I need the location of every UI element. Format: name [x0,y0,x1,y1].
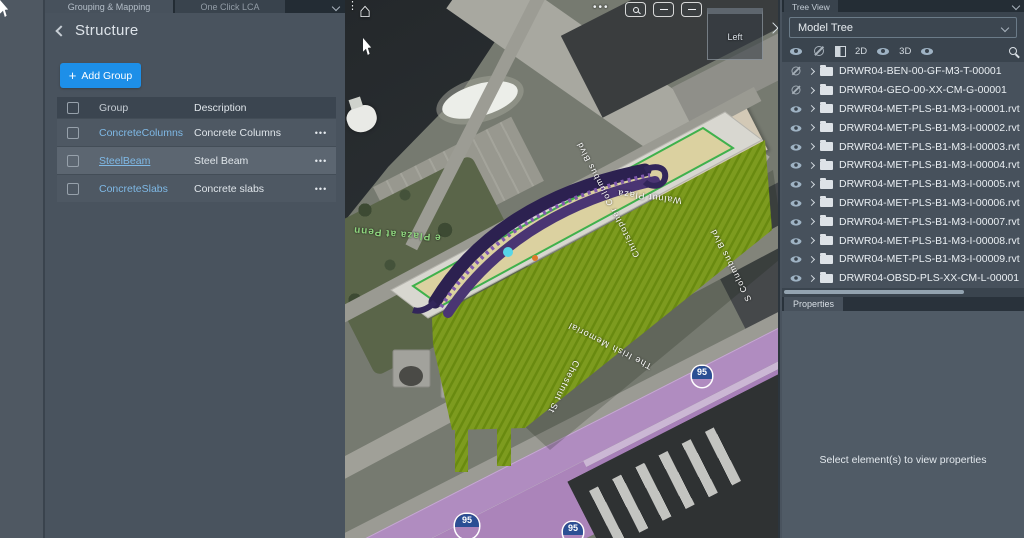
tree-item[interactable]: DRWR04-MET-PLS-B1-M3-I-00004.rvt [782,156,1024,175]
visibility-eye-icon[interactable] [790,178,803,191]
tree-item[interactable]: DRWR04-MET-PLS-B1-M3-I-00001.rvt [782,100,1024,119]
right-tabbar: Tree View [782,0,1024,12]
model-tree-list: DRWR04-BEN-00-GF-M3-T-00001 DRWR04-GEO-0… [782,62,1024,288]
group-description: Concrete Columns [194,127,306,139]
tree-toolbar: 2D 3D [789,43,1017,59]
table-row-steelbeam[interactable]: SteelBeam Steel Beam ••• [57,146,336,174]
tree-item[interactable]: DRWR04-MET-PLS-B1-M3-I-00007.rvt [782,212,1024,231]
tree-item-label[interactable]: DRWR04-MET-PLS-B1-M3-I-00002.rvt [839,122,1020,134]
zoom-tool-icon[interactable] [625,2,646,17]
pan-tool-icon[interactable] [653,2,674,17]
tree-item-label[interactable]: DRWR04-MET-PLS-B1-M3-I-00004.rvt [839,159,1020,171]
visibility-eye-icon[interactable] [790,272,803,285]
tab-grouping-mapping-label: Grouping & Mapping [68,2,151,12]
more-options-icon[interactable]: ••• [593,2,610,13]
expand-chevron-icon[interactable] [808,105,815,112]
horizontal-scrollbar[interactable] [784,290,964,294]
expand-chevron-icon[interactable] [808,124,815,131]
tree-item-label[interactable]: DRWR04-MET-PLS-B1-M3-I-00008.rvt [839,235,1020,247]
2d-visibility-eye-icon[interactable] [876,44,890,58]
expand-chevron-icon[interactable] [808,237,815,244]
column-header-group: Group [99,102,194,114]
tab-tree-view-label: Tree View [792,2,830,12]
back-chevron-icon[interactable] [55,25,66,36]
tree-item[interactable]: DRWR04-MET-PLS-B1-M3-I-00006.rvt [782,194,1024,213]
folder-icon [820,180,833,189]
tab-properties-label: Properties [793,299,834,309]
group-description: Concrete slabs [194,183,306,195]
tree-view-panel: Tree View Model Tree 2D 3D DRWR04-BEN-00… [782,0,1024,538]
row-menu-icon[interactable]: ••• [306,156,336,166]
2d-label: 2D [855,46,867,57]
visibility-eye-icon[interactable] [790,234,803,247]
drag-handle-icon[interactable]: ⋮ [347,4,358,9]
show-all-eye-icon[interactable] [789,44,803,58]
add-group-button[interactable]: + Add Group [60,63,141,88]
folder-icon [820,104,833,113]
hide-all-eye-icon[interactable] [812,44,826,58]
3d-visibility-eye-icon[interactable] [920,44,934,58]
properties-empty-message: Select element(s) to view properties [820,454,987,466]
expand-chevron-icon[interactable] [808,87,815,94]
tree-item-label[interactable]: DRWR04-GEO-00-XX-CM-G-00001 [839,84,1007,96]
dash-glyph [688,9,696,11]
groups-table: Group Description ConcreteColumns Concre… [57,97,336,202]
visibility-eye-icon[interactable] [790,84,803,97]
tree-item-label[interactable]: DRWR04-OBSD-PLS-XX-CM-L-00001 [839,272,1019,284]
left-gutter [0,0,45,538]
group-description: Steel Beam [194,155,306,167]
expand-chevron-icon[interactable] [808,275,815,282]
tab-one-click-lca-label: One Click LCA [200,2,259,12]
tree-item[interactable]: DRWR04-MET-PLS-B1-M3-I-00003.rvt [782,137,1024,156]
group-name-link[interactable]: ConcreteColumns [99,127,194,139]
tab-tree-view[interactable]: Tree View [784,0,838,12]
tree-item[interactable]: DRWR04-MET-PLS-B1-M3-I-00002.rvt [782,118,1024,137]
tree-item[interactable]: DRWR04-MET-PLS-B1-M3-I-00005.rvt [782,175,1024,194]
expand-chevron-icon[interactable] [808,143,815,150]
folder-icon [820,142,833,151]
interstate-95-shield: 95 [455,514,479,538]
column-header-description: Description [194,102,306,114]
map-3d-viewport[interactable]: Walnut Plaza e Plaza at Penn Christopher… [345,0,780,538]
folder-icon [820,123,833,132]
model-tree-dropdown-value: Model Tree [798,22,853,34]
table-row-concretecolumns[interactable]: ConcreteColumns Concrete Columns ••• [57,118,336,146]
page-title: Structure [75,22,139,39]
properties-panel: Select element(s) to view properties [782,311,1024,538]
tree-item[interactable]: DRWR04-OBSD-PLS-XX-CM-L-00001 [782,269,1024,288]
tab-grouping-mapping[interactable]: Grouping & Mapping [45,0,173,13]
tree-item-label[interactable]: DRWR04-MET-PLS-B1-M3-I-00007.rvt [839,216,1020,228]
folder-icon [820,236,833,245]
folder-icon [820,86,833,95]
row-menu-icon[interactable]: ••• [306,184,336,194]
window-tool-icon[interactable] [681,2,702,17]
row-checkbox[interactable] [67,155,79,167]
tree-item[interactable]: DRWR04-BEN-00-GF-M3-T-00001 [782,62,1024,81]
isolate-icon[interactable] [835,46,846,57]
left-tabbar: Grouping & Mapping One Click LCA [45,0,345,13]
tree-item-label[interactable]: DRWR04-MET-PLS-B1-M3-I-00006.rvt [839,197,1020,209]
folder-icon [820,67,833,76]
model-tree-dropdown[interactable]: Model Tree [789,17,1017,38]
dash-glyph [660,9,668,11]
plus-icon: + [69,69,77,82]
tree-item[interactable]: DRWR04-MET-PLS-B1-M3-I-00009.rvt [782,250,1024,269]
visibility-eye-icon[interactable] [790,215,803,228]
interstate-95-shield: 95 [563,522,583,538]
tree-item-label[interactable]: DRWR04-MET-PLS-B1-M3-I-00003.rvt [839,141,1020,153]
folder-icon [820,217,833,226]
select-all-checkbox[interactable] [67,102,79,114]
properties-tabbar: Properties [782,297,1024,311]
expand-chevron-icon[interactable] [808,162,815,169]
visibility-eye-icon[interactable] [790,197,803,210]
folder-icon [820,161,833,170]
grouping-mapping-panel: Grouping & Mapping One Click LCA Structu… [45,0,345,538]
visibility-eye-icon[interactable] [790,121,803,134]
view-cube[interactable]: Left [707,8,763,60]
tab-properties[interactable]: Properties [784,297,843,311]
row-checkbox[interactable] [67,183,79,195]
left-tabbar-chevron-down-icon[interactable] [332,3,340,11]
tree-item-label[interactable]: DRWR04-MET-PLS-B1-M3-I-00001.rvt [839,103,1020,115]
expand-chevron-icon[interactable] [808,199,815,206]
folder-icon [820,274,833,283]
dropdown-chevron-icon [1001,23,1009,31]
expand-chevron-icon[interactable] [808,68,815,75]
interstate-95-shield: 95 [692,366,712,387]
table-row-concreteslabs[interactable]: ConcreteSlabs Concrete slabs ••• [57,174,336,202]
row-menu-icon[interactable]: ••• [306,128,336,138]
tree-item-label[interactable]: DRWR04-MET-PLS-B1-M3-I-00005.rvt [839,178,1020,190]
expand-chevron-icon[interactable] [808,181,815,188]
tree-item[interactable]: DRWR04-MET-PLS-B1-M3-I-00008.rvt [782,231,1024,250]
home-icon[interactable]: ⌂ [359,0,371,23]
visibility-eye-icon[interactable] [790,253,803,266]
folder-icon [820,255,833,264]
app-window: Grouping & Mapping One Click LCA Structu… [0,0,1024,538]
structure-header: Structure [57,22,139,39]
magnifier-glyph [633,7,639,13]
tree-item-label[interactable]: DRWR04-MET-PLS-B1-M3-I-00009.rvt [839,253,1020,265]
visibility-eye-icon[interactable] [790,159,803,172]
bim-model-3d[interactable] [345,0,780,538]
folder-icon [820,198,833,207]
search-icon[interactable] [1009,47,1017,55]
add-group-label: Add Group [81,70,132,82]
tree-item[interactable]: DRWR04-GEO-00-XX-CM-G-00001 [782,81,1024,100]
3d-label: 3D [899,46,911,57]
tree-item-label[interactable]: DRWR04-BEN-00-GF-M3-T-00001 [839,65,1002,77]
visibility-eye-icon[interactable] [790,103,803,116]
group-name-link[interactable]: SteelBeam [99,155,194,167]
view-cube-face-label: Left [727,32,742,42]
visibility-eye-icon[interactable] [790,140,803,153]
groups-table-header: Group Description [57,97,336,118]
row-checkbox[interactable] [67,127,79,139]
visibility-eye-icon[interactable] [790,65,803,78]
expand-chevron-icon[interactable] [808,256,815,263]
group-name-link[interactable]: ConcreteSlabs [99,183,194,195]
expand-chevron-icon[interactable] [808,218,815,225]
right-tabbar-chevron-down-icon[interactable] [1012,2,1020,10]
tab-one-click-lca[interactable]: One Click LCA [175,0,285,13]
